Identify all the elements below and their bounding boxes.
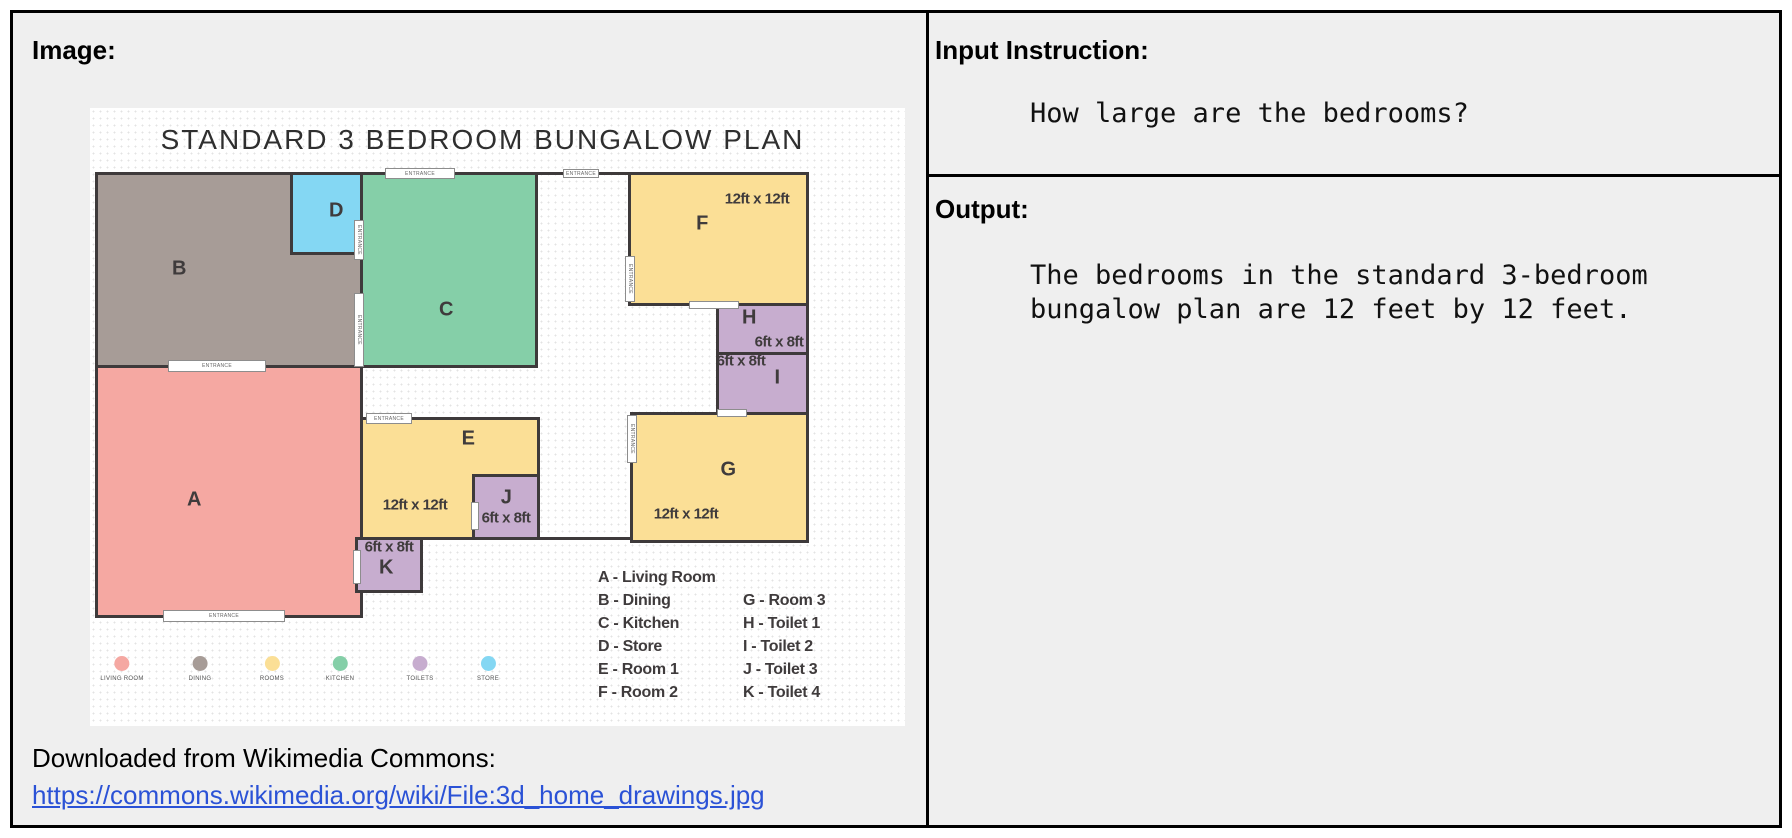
room-label-B: B (172, 258, 186, 281)
door-kitchen-top: ENTRANCE (385, 168, 455, 179)
door-corridor-top: ENTRANCE (563, 169, 599, 178)
room-label-F: F (696, 213, 708, 236)
door-living-bottom: ENTRANCE (163, 610, 285, 622)
room-dims-J: 6ft x 8ft (482, 510, 531, 527)
legend-item: H - Toilet 1 (743, 612, 825, 635)
toilets-swatch (413, 656, 428, 671)
room-dims-H: 6ft x 8ft (755, 334, 804, 351)
color-key-store: STORE (477, 656, 499, 682)
input-instruction-label: Input Instruction: (935, 35, 1149, 66)
room-dims-F: 12ft x 12ft (725, 191, 790, 208)
color-key-living-room: LIVING ROOM (100, 656, 143, 682)
color-key-dining: DINING (189, 656, 212, 682)
room-label-I: I (774, 367, 779, 390)
input-instruction-text: How large are the bedrooms? (1030, 97, 1730, 131)
room-label-K: K (379, 557, 393, 580)
door-room3-left: ENTRANCE (627, 415, 637, 463)
color-key-toilets: TOILETS (407, 656, 434, 682)
room-label-A: A (187, 489, 201, 512)
color-key-kitchen: KITCHEN (326, 656, 354, 682)
room-kitchen (360, 172, 538, 368)
source-attribution: Downloaded from Wikimedia Commons: (32, 743, 496, 774)
example-card: Image: STANDARD 3 BEDROOM BUNGALOW PLAN … (10, 10, 1782, 828)
room-dims-I: 6ft x 8ft (717, 353, 766, 370)
room-label-H: H (742, 307, 756, 330)
door-toilet3-left (471, 502, 479, 530)
door-toilet4-left (353, 550, 361, 584)
floor-plan-image: STANDARD 3 BEDROOM BUNGALOW PLAN ENTRANC… (90, 108, 905, 726)
output-text: The bedrooms in the standard 3-bedroom b… (1030, 259, 1680, 327)
room-label-E: E (462, 428, 475, 451)
room-living (95, 365, 363, 618)
room-dims-K: 6ft x 8ft (365, 539, 414, 556)
dining-swatch (193, 656, 208, 671)
room-dims-G: 12ft x 12ft (654, 506, 719, 523)
panel-divider-horizontal (929, 174, 1779, 177)
kitchen-swatch (333, 656, 348, 671)
plan-title: STANDARD 3 BEDROOM BUNGALOW PLAN (90, 124, 875, 156)
room-label-G: G (720, 459, 735, 482)
color-key-rooms: ROOMS (260, 656, 284, 682)
legend-item: E - Room 1 (598, 658, 716, 681)
panel-divider-vertical (926, 13, 929, 825)
rooms-swatch (264, 656, 279, 671)
legend-item: B - Dining (598, 589, 716, 612)
legend-item: D - Store (598, 635, 716, 658)
store-swatch (481, 656, 496, 671)
legend-item: A - Living Room (598, 566, 716, 589)
room-label-J: J (501, 487, 512, 510)
room-dims-E: 12ft x 12ft (383, 497, 448, 514)
legend-item: K - Toilet 4 (743, 681, 825, 704)
corridor-bottom-wall (537, 537, 633, 540)
legend-item: J - Toilet 3 (743, 658, 825, 681)
legend-item: I - Toilet 2 (743, 635, 825, 658)
legend-item: F - Room 2 (598, 681, 716, 704)
door-room1-top: ENTRANCE (366, 413, 412, 424)
wikimedia-link[interactable]: https://commons.wikimedia.org/wiki/File:… (32, 780, 765, 811)
output-label: Output: (935, 194, 1029, 225)
room-label-D: D (329, 200, 343, 223)
door-dining-living: ENTRANCE (168, 360, 266, 372)
living-room-swatch (115, 656, 130, 671)
room-store (290, 172, 363, 255)
image-cell-label: Image: (32, 35, 116, 66)
plan-legend-col2: G - Room 3 H - Toilet 1 I - Toilet 2 J -… (743, 589, 825, 704)
legend-item: C - Kitchen (598, 612, 716, 635)
plan-legend-col1: A - Living Room B - Dining C - Kitchen D… (598, 566, 716, 704)
door-dining-kitchen: ENTRANCE (354, 293, 364, 367)
room-label-C: C (439, 299, 453, 322)
door-store-right: ENTRANCE (354, 220, 364, 260)
legend-item: G - Room 3 (743, 589, 825, 612)
door-toilet1-top (689, 301, 739, 309)
door-room3-top (717, 409, 747, 417)
door-room2-left: ENTRANCE (625, 256, 635, 302)
